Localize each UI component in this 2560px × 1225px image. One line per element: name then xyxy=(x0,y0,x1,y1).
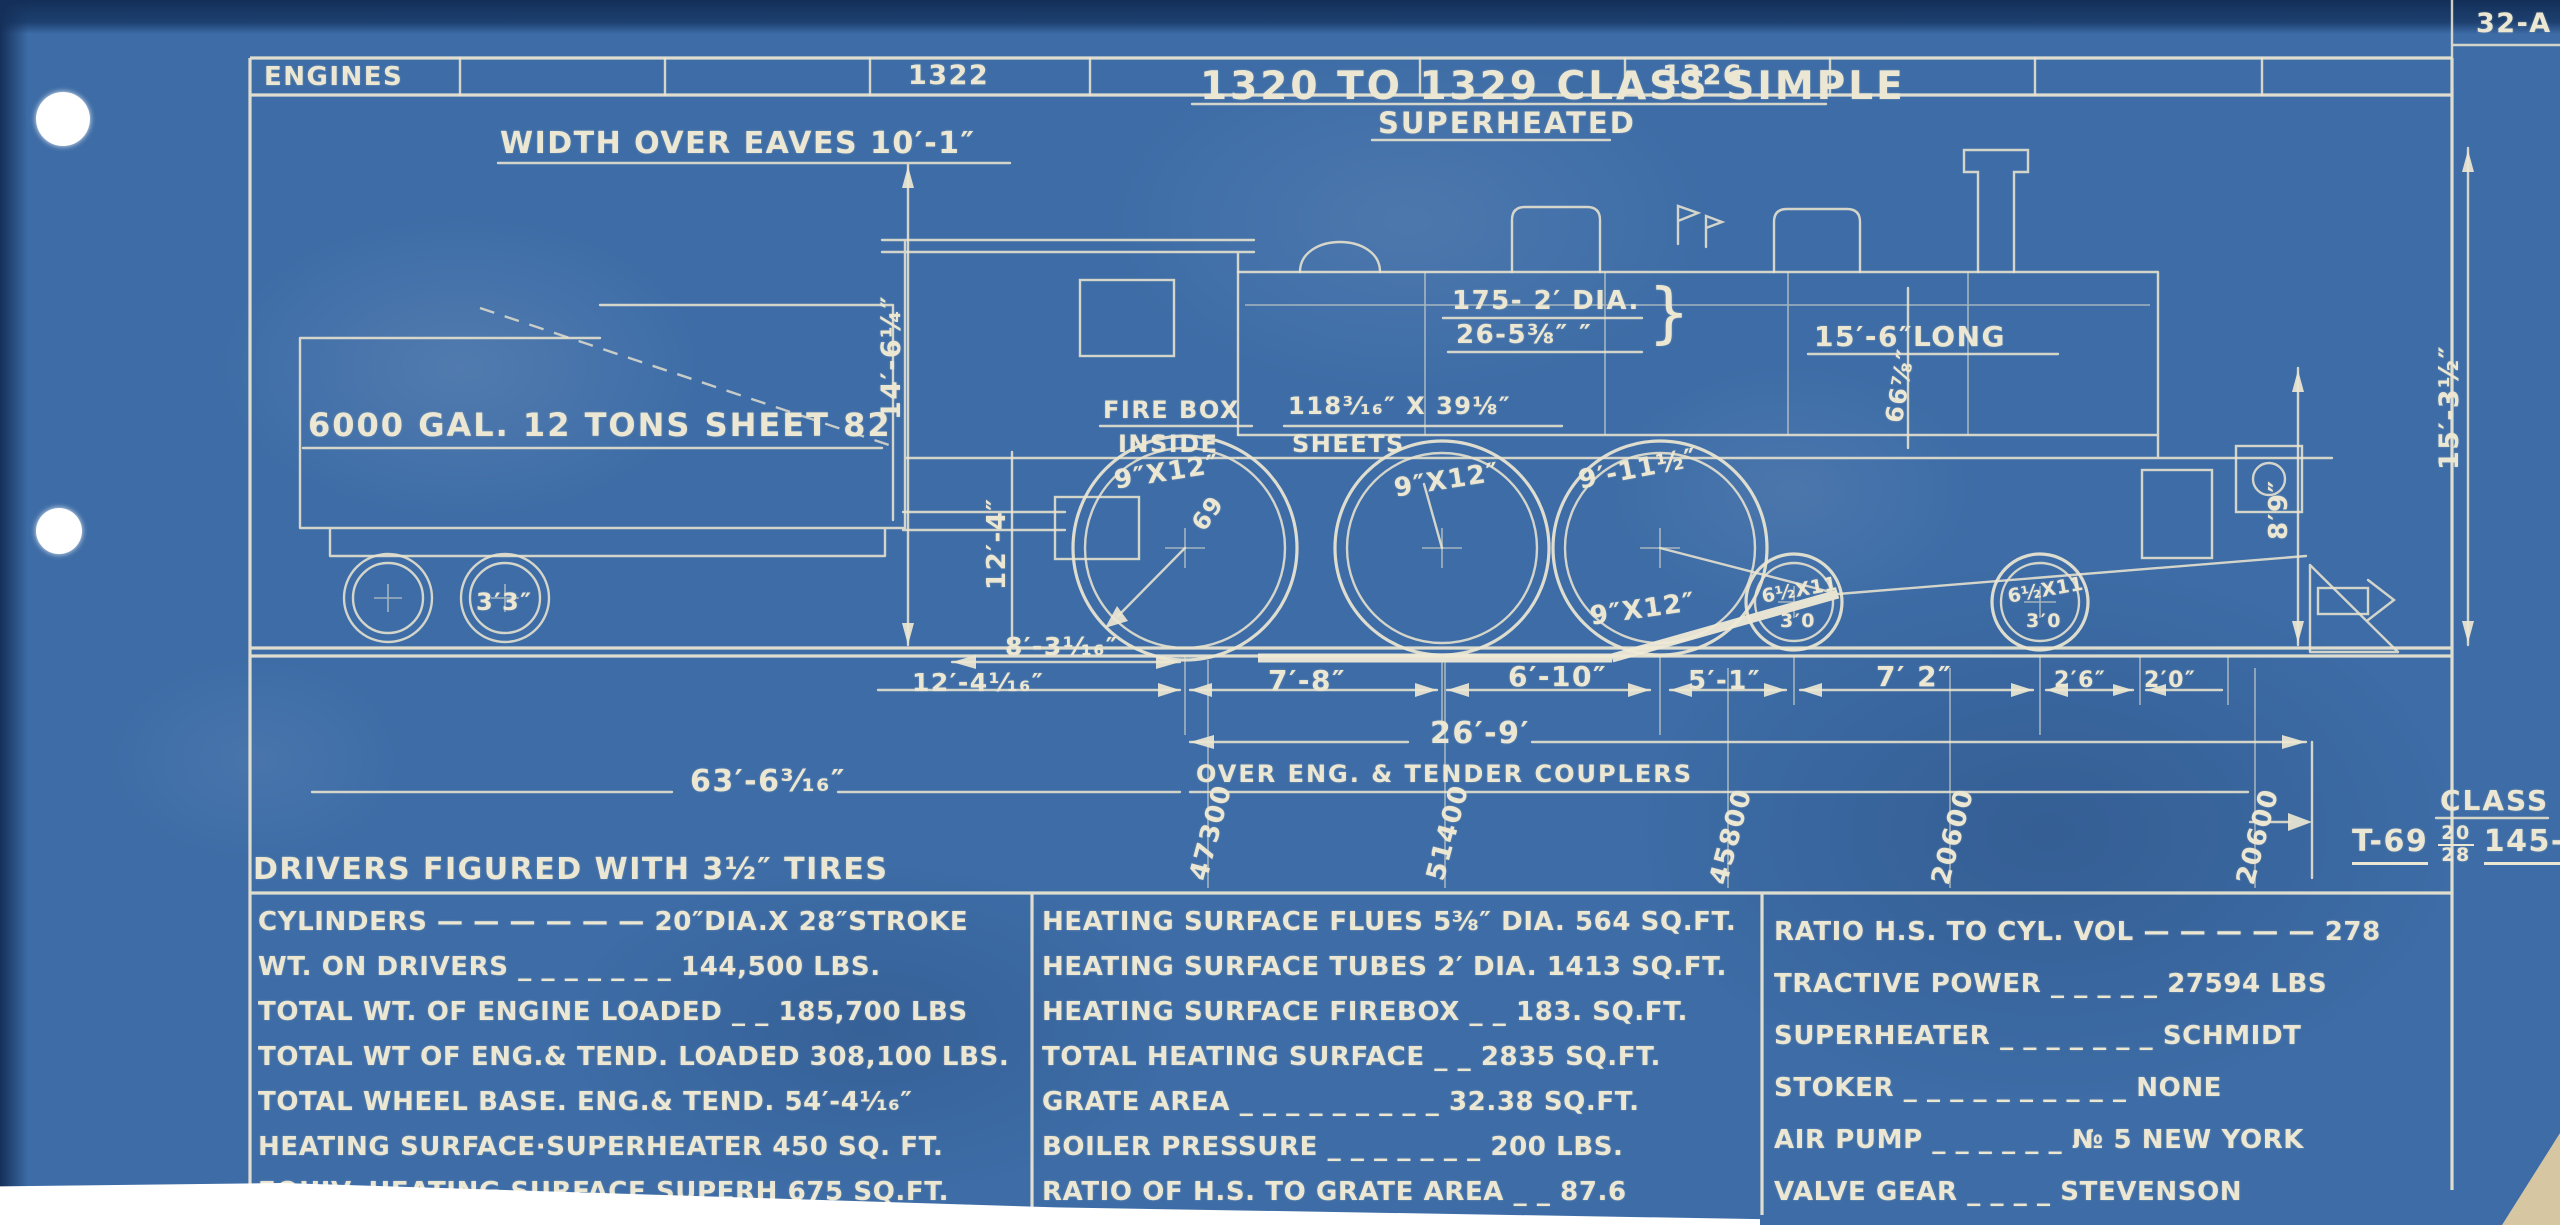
width-over-eaves-label: WIDTH OVER EAVES 10′-1″ xyxy=(500,126,975,161)
truck-dia1-label: 3′0 xyxy=(1780,610,1816,632)
firebox-sheets-label: SHEETS xyxy=(1292,430,1405,458)
dim-26-9: 26′-9′ xyxy=(1430,716,1530,751)
dim-5-1: 5′-1″ xyxy=(1688,666,1761,696)
blueprint-sheet: 32-A ENGINES 1322 1326 1320 TO 1329 CLAS… xyxy=(0,0,2560,1225)
dim-2-0: 2′0″ xyxy=(2144,668,2196,693)
punch-hole-top xyxy=(36,92,90,146)
truck-dia2-label: 3′0 xyxy=(2026,610,2062,632)
tender-drawing xyxy=(300,305,1065,642)
spec-row: SUPERHEATER _ _ _ _ _ _ _ SCHMIDT xyxy=(1774,1010,2446,1062)
spec-row: AIR PUMP _ _ _ _ _ _ № 5 NEW YORK xyxy=(1774,1114,2446,1166)
class-designation: T-69 20 28 145-S xyxy=(2352,824,2560,865)
dim-6-10: 6′-10″ xyxy=(1508,660,1607,693)
spec-row: RATIO H.S. TO CYL. VOL — — — — — 278 xyxy=(1774,906,2446,958)
firebox-label: FIRE BOX xyxy=(1103,396,1240,424)
spec-row: GRATE AREA _ _ _ _ _ _ _ _ _ 32.38 SQ.FT… xyxy=(1042,1080,1756,1125)
spec-row: HEATING SURFACE FLUES 5⅜″ DIA. 564 SQ.FT… xyxy=(1042,900,1756,945)
dim-7-8: 7′-8″ xyxy=(1268,664,1346,697)
boiler-length-label: 15′-6″LONG xyxy=(1814,320,2006,353)
spec-row: RATIO OF H.S. TO GRATE AREA _ _ 87.6 xyxy=(1042,1170,1756,1215)
spec-row: HEATING SURFACE TUBES 2′ DIA. 1413 SQ.FT… xyxy=(1042,945,1756,990)
class-label: CLASS xyxy=(2440,784,2549,817)
class-suffix: 145-S xyxy=(2484,824,2560,865)
class-prefix: T-69 xyxy=(2352,824,2428,865)
dim-7-2: 7′ 2″ xyxy=(1876,660,1952,693)
dim-12-4-vertical: 12′-4″ xyxy=(982,497,1012,590)
spec-row: TOTAL WT. OF ENGINE LOADED _ _ 185,700 L… xyxy=(258,990,1026,1035)
tender-wheel-dia-label: 3′3″ xyxy=(476,588,532,616)
drivers-note-label: DRIVERS FIGURED WITH 3½″ TIRES xyxy=(253,852,888,887)
header-engine-number-1322: 1322 xyxy=(908,60,989,91)
spec-row: WT. ON DRIVERS _ _ _ _ _ _ _ 144,500 LBS… xyxy=(258,945,1026,990)
firebox-dims-label: 118³⁄₁₆″ X 39⅛″ xyxy=(1288,392,1511,420)
title-line1: 1320 TO 1329 CLASS SIMPLE xyxy=(1200,64,1906,109)
punch-hole-bottom xyxy=(36,508,82,554)
spec-row: STOKER _ _ _ _ _ _ _ _ _ _ NONE xyxy=(1774,1062,2446,1114)
spec-row: HEATING SURFACE·SUPERHEATER 450 SQ. FT. xyxy=(258,1125,1026,1170)
flue-count-label: 175- 2′ DIA. xyxy=(1452,286,1640,316)
spec-row: TOTAL WHEEL BASE. ENG.& TEND. 54′-4¹⁄₁₆″ xyxy=(258,1080,1026,1125)
class-fraction: 20 28 xyxy=(2438,824,2473,865)
spec-table-right: RATIO H.S. TO CYL. VOL — — — — — 278TRAC… xyxy=(1774,906,2446,1218)
dim-8-3: 8′-3¹⁄₁₆″ xyxy=(1005,632,1118,661)
spec-table-left: CYLINDERS — — — — — — 20″DIA.X 28″STROKE… xyxy=(258,900,1026,1215)
dim-8-9: 8′9″ xyxy=(2264,479,2294,540)
spec-row: HEATING SURFACE FIREBOX _ _ 183. SQ.FT. xyxy=(1042,990,1756,1035)
spec-row: BOILER PRESSURE _ _ _ _ _ _ _ 200 LBS. xyxy=(1042,1125,1756,1170)
sheet-number: 32-A xyxy=(2476,8,2552,39)
spec-row: CYLINDERS — — — — — — 20″DIA.X 28″STROKE xyxy=(258,900,1026,945)
dim-63-6: 63′-6³⁄₁₆″ xyxy=(690,764,846,799)
text-underlines xyxy=(303,104,2548,818)
spec-row: TRACTIVE POWER _ _ _ _ _ 27594 LBS xyxy=(1774,958,2446,1010)
dim-cab-height: 14′-6¼″ xyxy=(876,295,907,420)
header-engines-label: ENGINES xyxy=(264,62,403,92)
spec-row: VALVE GEAR _ _ _ _ STEVENSON xyxy=(1774,1166,2446,1218)
tender-capacity-label: 6000 GAL. 12 TONS SHEET 82 xyxy=(308,406,892,444)
dim-15-3: 15′-3½″ xyxy=(2434,345,2465,470)
brace-glyph: } xyxy=(1648,274,1692,351)
spec-table-middle: HEATING SURFACE FLUES 5⅜″ DIA. 564 SQ.FT… xyxy=(1042,900,1756,1215)
flue-count2-label: 26-5⅜″ ″ xyxy=(1456,320,1592,350)
spec-row: TOTAL HEATING SURFACE _ _ 2835 SQ.FT. xyxy=(1042,1035,1756,1080)
dim-12-4: 12′-4¹⁄₁₆″ xyxy=(912,668,1044,697)
dim-2-6: 2′6″ xyxy=(2054,668,2106,693)
spec-row: TOTAL WT OF ENG.& TEND. LOADED 308,100 L… xyxy=(258,1035,1026,1080)
title-line2: SUPERHEATED xyxy=(1378,106,1636,140)
